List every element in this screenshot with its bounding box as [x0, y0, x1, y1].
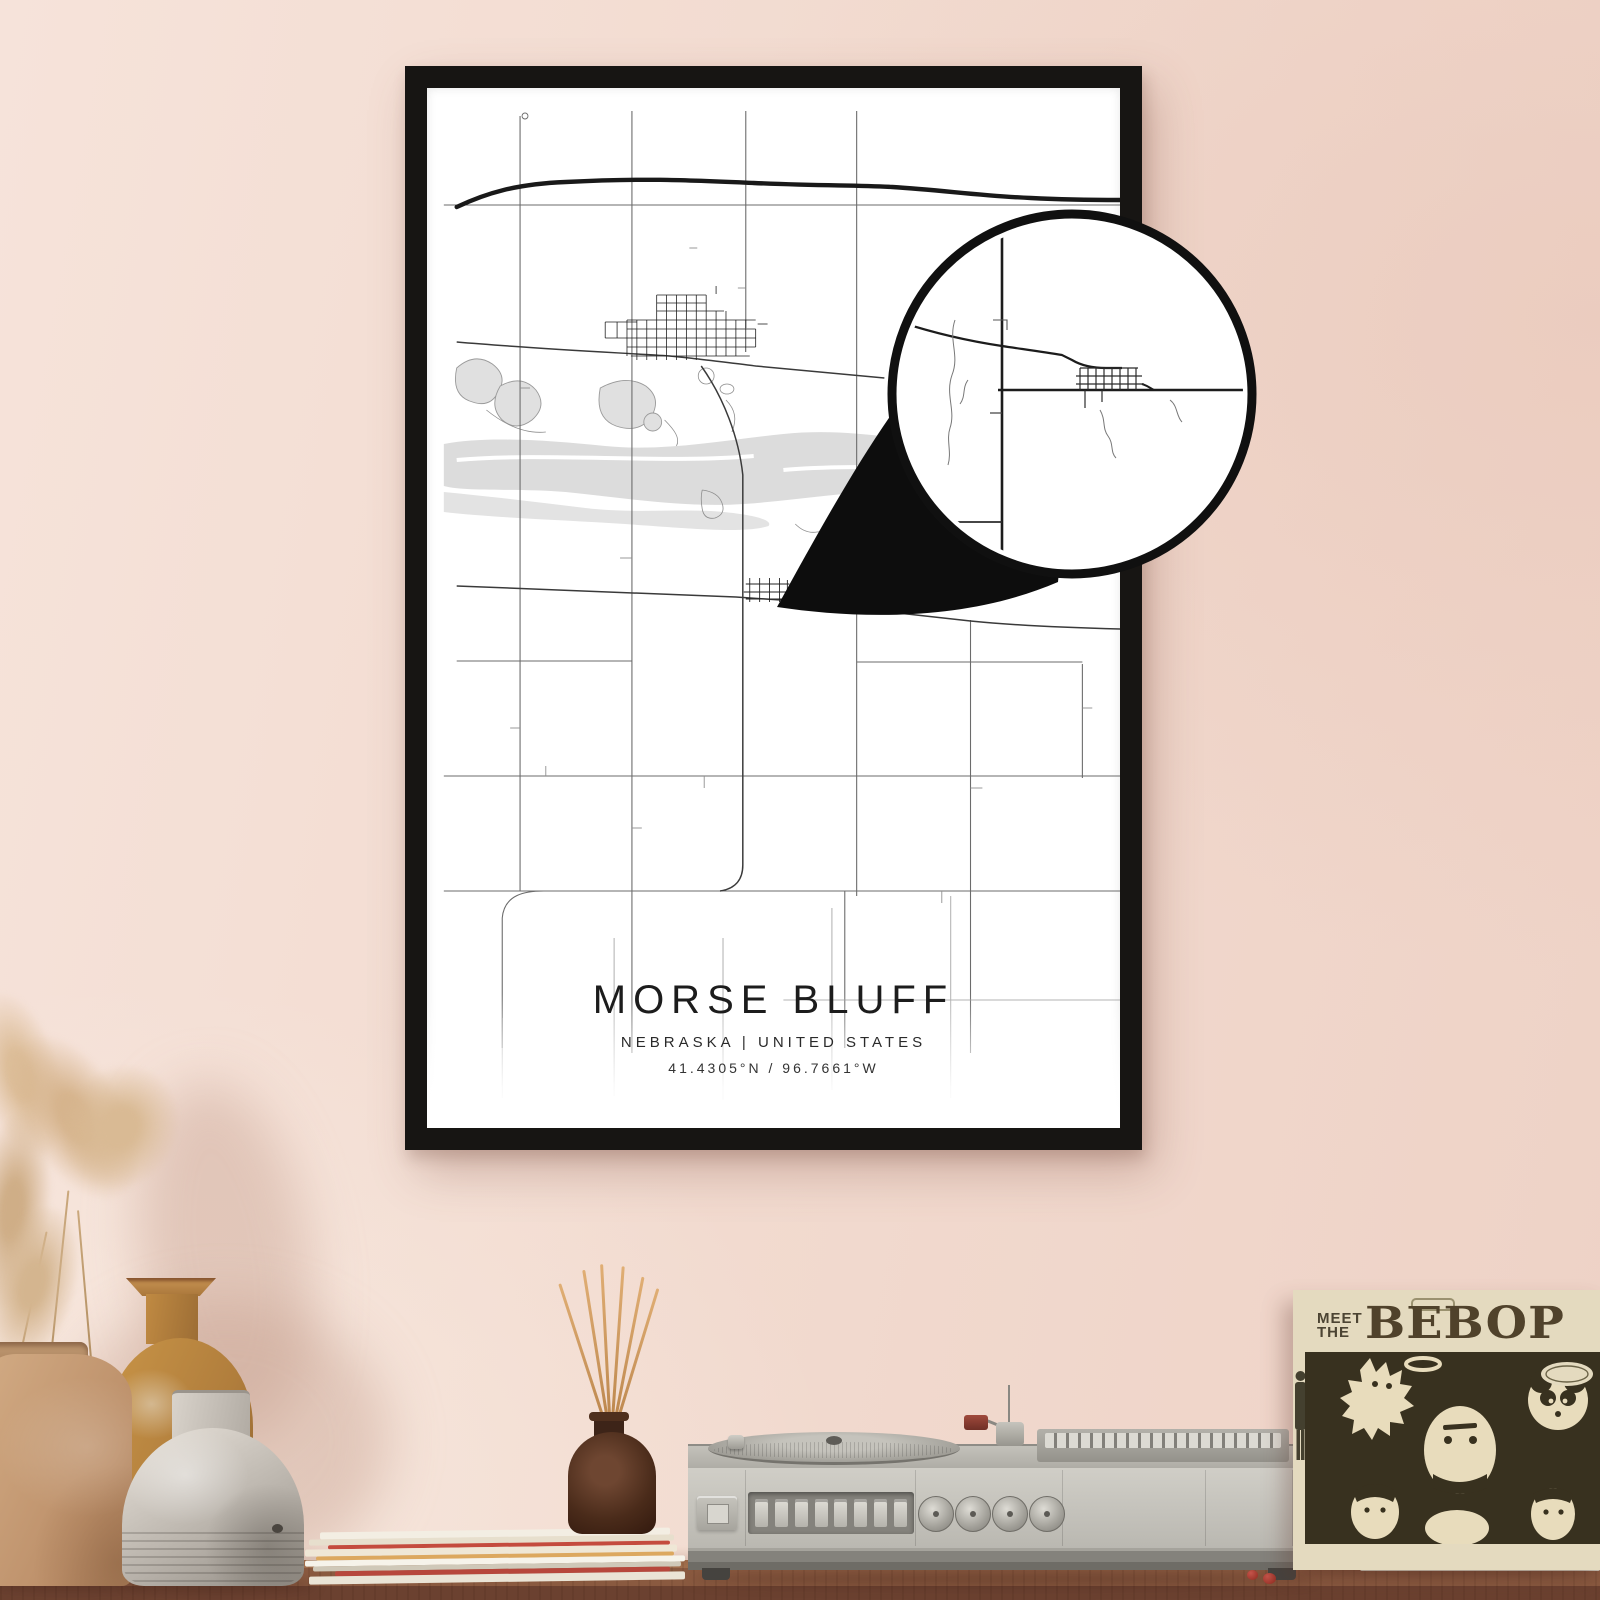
preset-button — [815, 1499, 828, 1527]
preset-button — [775, 1499, 788, 1527]
gray-vase-ribs — [122, 1532, 304, 1584]
sleeve-title-main: BEBOP — [1365, 1298, 1565, 1349]
panel-seam — [1205, 1470, 1206, 1546]
preset-button — [894, 1499, 907, 1527]
module-keys — [1045, 1433, 1281, 1448]
record-player — [688, 1378, 1318, 1582]
panel-seam — [745, 1470, 746, 1546]
volume-knob — [918, 1496, 954, 1532]
diffuser-bottle — [568, 1432, 656, 1534]
poster-title: MORSE BLUFF — [427, 978, 1120, 1023]
45-adapter — [728, 1435, 744, 1449]
player-base — [688, 1548, 1318, 1570]
zoom-callout — [740, 170, 1280, 640]
preset-button — [755, 1499, 768, 1527]
sleeve-title-prefix: MEET THE — [1317, 1312, 1363, 1340]
gray-vase-mark — [272, 1524, 283, 1533]
reed-diffuser — [560, 1266, 670, 1541]
control-module — [1037, 1429, 1289, 1462]
power-button — [697, 1496, 737, 1530]
record-sleeve: MEET THE BEBOP — [1293, 1290, 1600, 1570]
sleeve-cartoon-faces — [1305, 1352, 1600, 1544]
preset-button — [854, 1499, 867, 1527]
tone-knob — [955, 1496, 991, 1532]
player-foot — [702, 1568, 730, 1580]
tuning-knob — [1029, 1496, 1065, 1532]
diffuser-bottle-lip — [589, 1412, 629, 1421]
poster-region: NEBRASKA | UNITED STATES — [427, 1034, 1120, 1051]
red-bead — [1247, 1570, 1258, 1580]
preset-button — [834, 1499, 847, 1527]
tonearm-pivot — [996, 1422, 1024, 1446]
preset-button — [795, 1499, 808, 1527]
preset-button — [874, 1499, 887, 1527]
zoom-callout-ring — [892, 214, 1252, 574]
ochre-vase-neck — [146, 1294, 198, 1344]
sleeve-word-the: THE — [1317, 1326, 1363, 1340]
room-scene: MORSE BLUFF NEBRASKA | UNITED STATES 41.… — [0, 0, 1600, 1600]
lakes — [455, 359, 661, 431]
balance-knob — [992, 1496, 1028, 1532]
tonearm-cartridge — [964, 1415, 988, 1430]
poster-title-block: MORSE BLUFF NEBRASKA | UNITED STATES 41.… — [427, 978, 1120, 1076]
tan-jar — [0, 1354, 132, 1586]
power-button-face — [707, 1504, 729, 1524]
poster-coordinates: 41.4305°N / 96.7661°W — [427, 1060, 1120, 1076]
panel-seam — [915, 1470, 916, 1546]
red-bead — [1263, 1573, 1276, 1584]
platter-spindle — [826, 1436, 842, 1445]
preset-button-row — [748, 1492, 914, 1534]
sleeve-artwork — [1305, 1352, 1600, 1544]
